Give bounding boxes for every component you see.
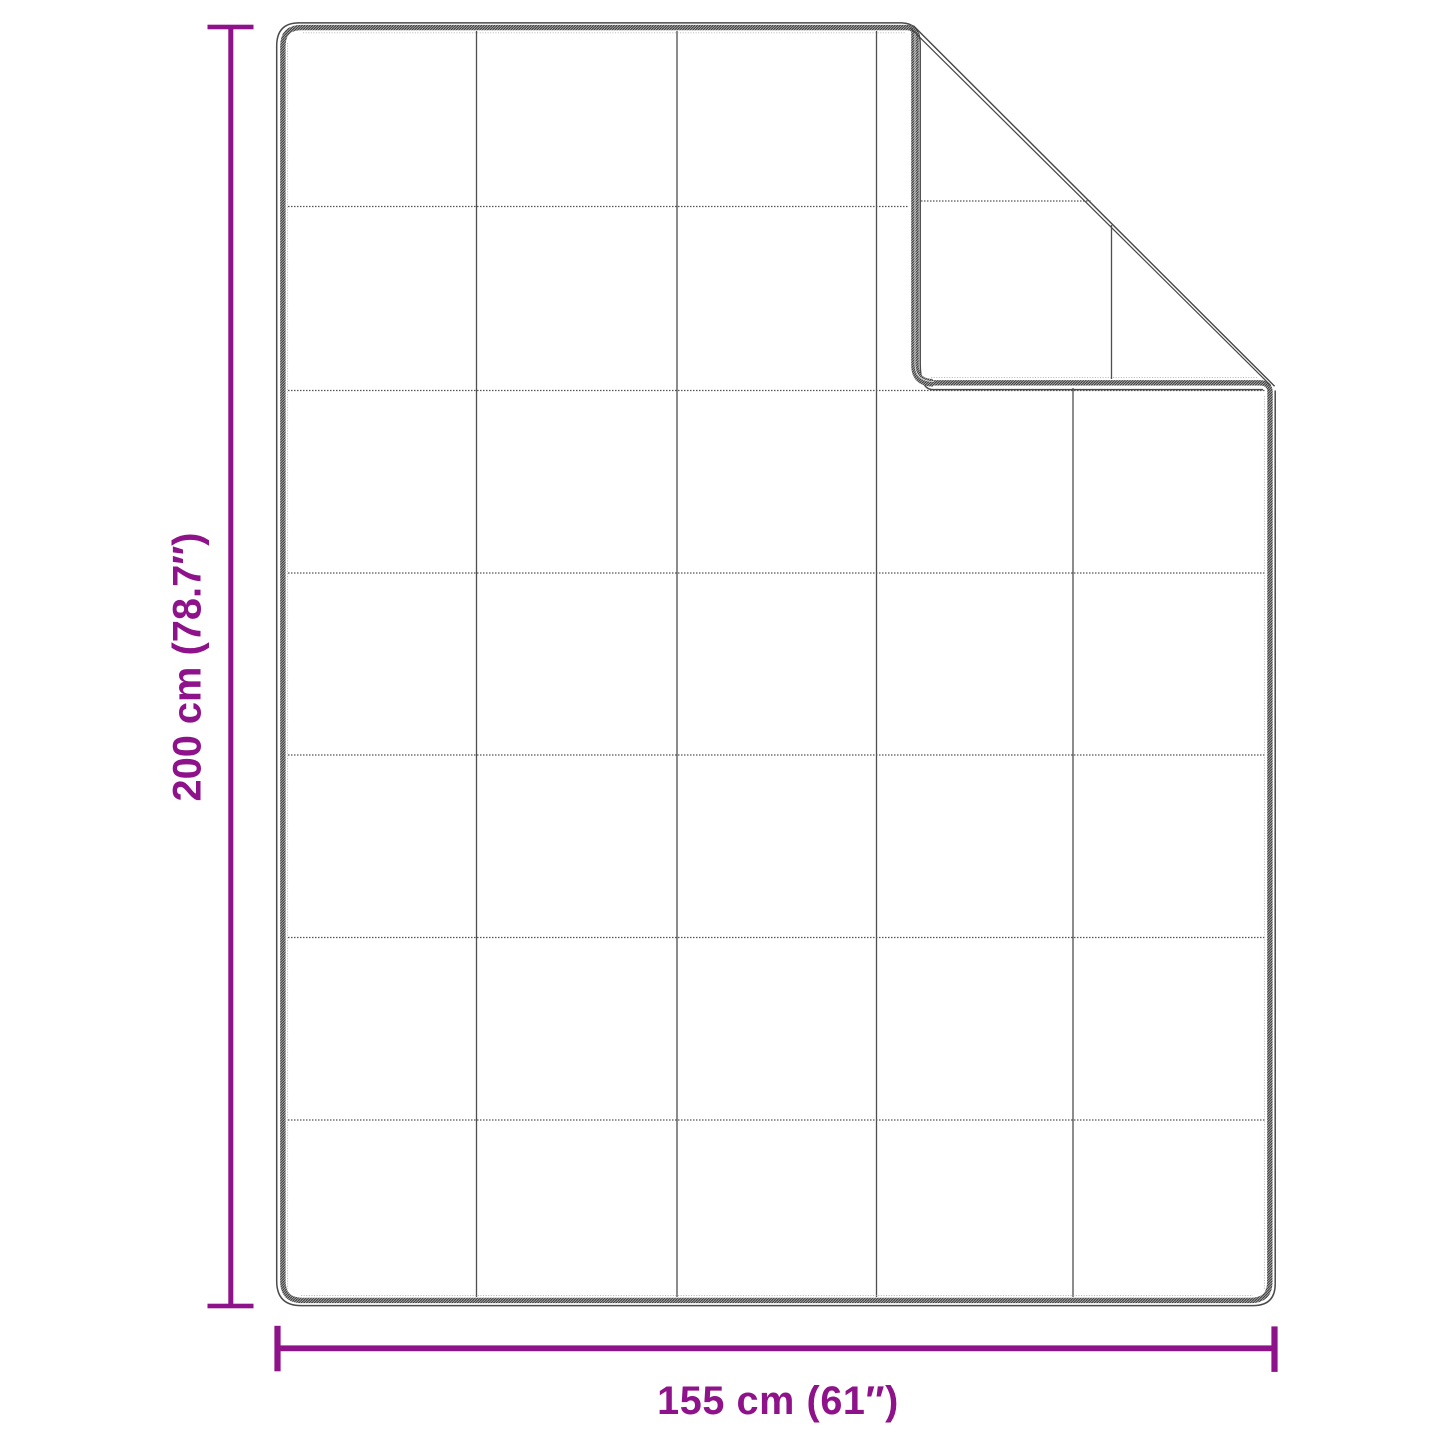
svg-text:200 cm (78.7″): 200 cm (78.7″) [166, 532, 210, 801]
svg-text:155 cm (61″): 155 cm (61″) [657, 1379, 899, 1423]
